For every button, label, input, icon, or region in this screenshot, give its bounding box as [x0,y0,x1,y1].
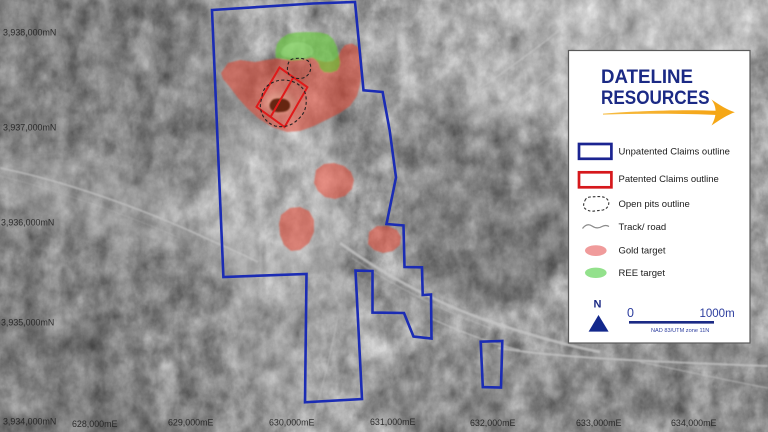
svg-text:633,000mE: 633,000mE [576,418,621,428]
svg-text:0: 0 [627,306,634,320]
svg-text:1000m: 1000m [700,308,735,320]
svg-text:Patented Claims outline: Patented Claims outline [619,174,719,185]
svg-text:630,000mE: 630,000mE [269,418,314,428]
svg-text:3,935,000mN: 3,935,000mN [1,318,54,328]
svg-text:Track/ road: Track/ road [619,222,667,233]
svg-text:628,000mE: 628,000mE [72,419,117,429]
svg-text:634,000mE: 634,000mE [671,418,716,428]
svg-text:3,938,000mN: 3,938,000mN [3,28,56,38]
svg-text:RESOURCES: RESOURCES [601,87,710,109]
svg-text:3,937,000mN: 3,937,000mN [3,123,56,133]
svg-text:Gold target: Gold target [619,246,666,257]
svg-text:REE target: REE target [619,268,666,279]
svg-text:NAD 83/UTM zone 11N: NAD 83/UTM zone 11N [651,328,709,334]
svg-text:N: N [594,299,602,311]
svg-text:3,936,000mN: 3,936,000mN [1,218,54,228]
svg-text:629,000mE: 629,000mE [168,418,213,428]
svg-text:3,934,000mN: 3,934,000mN [3,417,56,427]
svg-text:Unpatented Claims outline: Unpatented Claims outline [619,147,730,158]
svg-text:Open pits outline: Open pits outline [619,199,690,210]
svg-text:631,000mE: 631,000mE [370,417,415,427]
svg-text:632,000mE: 632,000mE [470,418,515,428]
svg-text:DATELINE: DATELINE [601,66,693,88]
